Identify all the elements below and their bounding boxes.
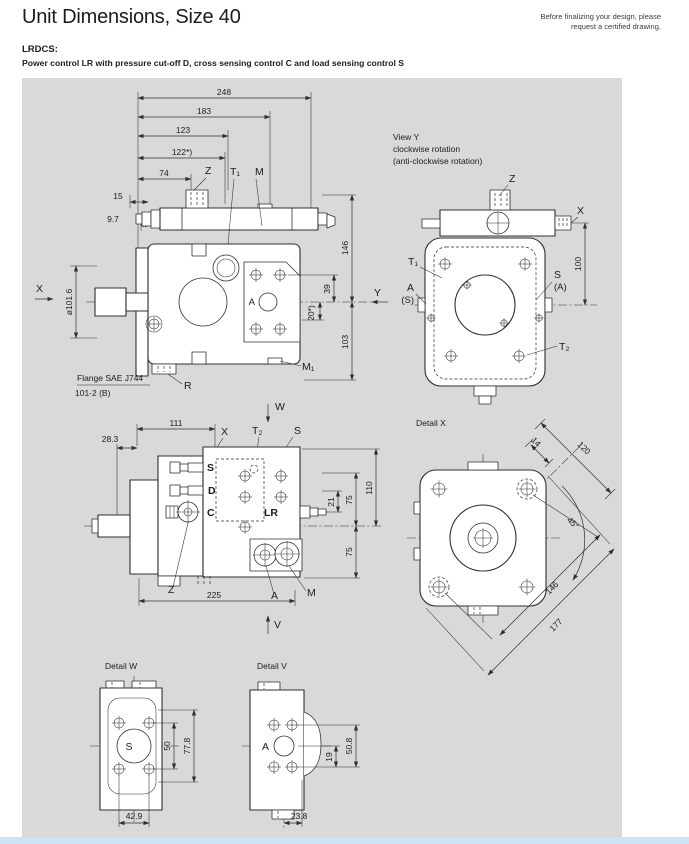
certified-drawing-note: Before finalizing your design, please re… xyxy=(541,12,662,31)
side2-label-a: A xyxy=(271,590,278,602)
detail-w-title: Detail W xyxy=(105,661,137,671)
view-y-label-a: A xyxy=(407,282,414,294)
port-label-c: C xyxy=(207,507,215,519)
dim-dia-101-6: ø101.6 xyxy=(64,288,74,315)
view-y-label-s-alt: (A) xyxy=(554,282,567,293)
port-label-t1: T₁ xyxy=(230,166,240,178)
datasheet-page: { "header": { "title": "Unit Dimensions,… xyxy=(0,0,689,844)
section-label-v: V xyxy=(274,619,281,631)
dim-39: 39 xyxy=(322,284,332,294)
detail-v-port-a: A xyxy=(262,741,269,753)
port-a-circle xyxy=(259,293,277,311)
dim-110: 110 xyxy=(364,481,374,495)
technical-drawing: 248 183 123 122*) 74 15 9.7 Z T₁ M xyxy=(22,78,622,838)
view-y-sub2: (anti-clockwise rotation) xyxy=(393,156,482,166)
drawing-canvas: 248 183 123 122*) 74 15 9.7 Z T₁ M xyxy=(22,78,622,838)
note-line-2: request a certified drawing. xyxy=(541,22,662,32)
view-y-label-a-alt: (S) xyxy=(401,295,414,306)
dim-183: 183 xyxy=(197,106,211,116)
section-label-x: X xyxy=(36,283,43,295)
flange-note-line1: Flange SAE J744 xyxy=(77,373,143,383)
bottom-side-view-drawing: W 111 X T₂ S 28.3 S D C L xyxy=(84,401,382,634)
port-label-r: R xyxy=(184,380,192,392)
dim-42-9: 42.9 xyxy=(126,811,143,821)
view-y-title: View Y xyxy=(393,132,419,142)
dim-122: 122*) xyxy=(172,147,192,157)
dim-50-8: 50.8 xyxy=(344,737,354,754)
note-line-1: Before finalizing your design, please xyxy=(541,12,662,22)
detail-w-port-s: S xyxy=(125,741,132,753)
port-label-z: Z xyxy=(205,165,212,177)
port-label-m: M xyxy=(255,166,264,178)
dim-248: 248 xyxy=(217,87,231,97)
side2-label-x: X xyxy=(221,426,228,438)
detail-v-drawing: Detail V A 50.8 19 23.8 xyxy=(242,661,360,830)
port-label-a: A xyxy=(249,297,256,308)
dim-74: 74 xyxy=(159,168,169,178)
dim-123: 123 xyxy=(176,125,190,135)
view-y-label-s: S xyxy=(554,269,561,281)
dim-120: 120 xyxy=(576,439,593,456)
port-label-s: S xyxy=(207,462,214,474)
main-side-view-drawing: 248 183 123 122*) 74 15 9.7 Z T₁ M xyxy=(35,87,388,398)
view-y-dim-100: 100 xyxy=(573,257,583,271)
dim-20: 20*) xyxy=(306,305,316,321)
dim-225: 225 xyxy=(207,590,221,600)
detail-v-title: Detail V xyxy=(257,661,287,671)
dim-177: 177 xyxy=(547,616,564,633)
footer-accent-strip xyxy=(0,837,689,844)
view-y-label-t1: T₁ xyxy=(408,256,418,268)
dim-103: 103 xyxy=(340,335,350,349)
dim-75-bottom: 75 xyxy=(344,547,354,557)
dim-14: 14 xyxy=(529,435,543,449)
drawing-subtitle: Power control LR with pressure cut-off D… xyxy=(22,58,404,68)
port-label-d: D xyxy=(208,485,216,497)
model-code: LRDCS: xyxy=(22,44,58,55)
section-label-y: Y xyxy=(374,287,381,299)
page-title: Unit Dimensions, Size 40 xyxy=(22,6,241,29)
dim-146: 146 xyxy=(340,241,350,255)
detail-w-drawing: Detail W S 50 77.8 42.9 xyxy=(90,661,198,827)
detail-x-drawing: Detail X 14 120 45° 146 1 xyxy=(407,418,615,675)
view-y-drawing: View Y clockwise rotation (anti-clockwis… xyxy=(393,132,597,404)
dim-19: 19 xyxy=(324,752,334,762)
dim-23-8: 23.8 xyxy=(291,811,308,821)
dim-28-3: 28.3 xyxy=(102,434,119,444)
view-y-label-t2: T₂ xyxy=(559,341,570,353)
dim-75-top: 75 xyxy=(344,495,354,505)
dim-15: 15 xyxy=(113,191,123,201)
view-y-label-z: Z xyxy=(509,173,516,185)
port-label-m1: M₁ xyxy=(302,361,315,373)
dim-50: 50 xyxy=(162,741,172,751)
flange-note-line2: 101-2 (B) xyxy=(75,388,111,398)
section-label-w: W xyxy=(275,401,285,413)
dim-111: 111 xyxy=(170,418,183,428)
detail-x-title: Detail X xyxy=(416,418,446,428)
dim-77-8: 77.8 xyxy=(182,737,192,754)
view-y-sub1: clockwise rotation xyxy=(393,144,460,154)
dim-21: 21 xyxy=(326,497,336,507)
side2-label-m: M xyxy=(307,587,316,599)
side2-label-z: Z xyxy=(168,584,175,596)
view-y-label-x: X xyxy=(577,205,584,217)
side2-label-s-top: S xyxy=(294,425,301,437)
dim-9-7: 9.7 xyxy=(107,214,119,224)
side2-label-t2: T₂ xyxy=(252,425,263,437)
port-label-lr: LR xyxy=(264,507,278,519)
